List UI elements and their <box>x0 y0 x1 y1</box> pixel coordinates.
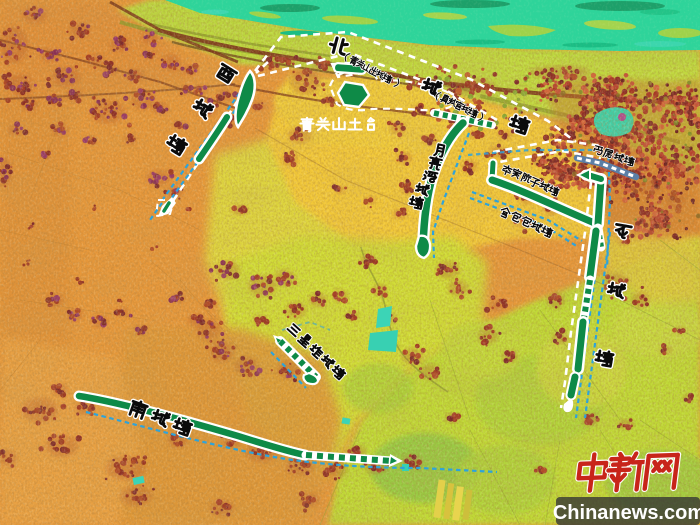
svg-text:Chinanews.com: Chinanews.com <box>553 502 700 524</box>
